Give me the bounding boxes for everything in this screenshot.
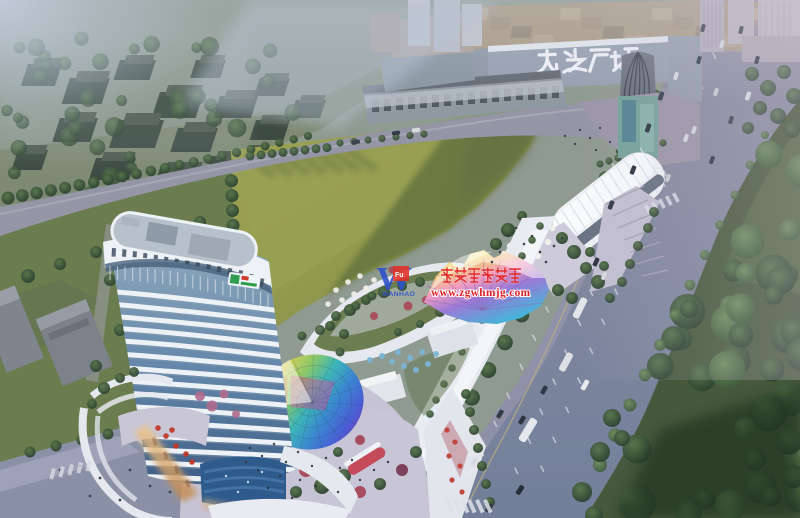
svg-text:www.zgwhmjg.com: www.zgwhmjg.com [431, 287, 531, 299]
svg-text:WANHAO: WANHAO [382, 291, 415, 298]
svg-text:Fu: Fu [395, 272, 404, 279]
